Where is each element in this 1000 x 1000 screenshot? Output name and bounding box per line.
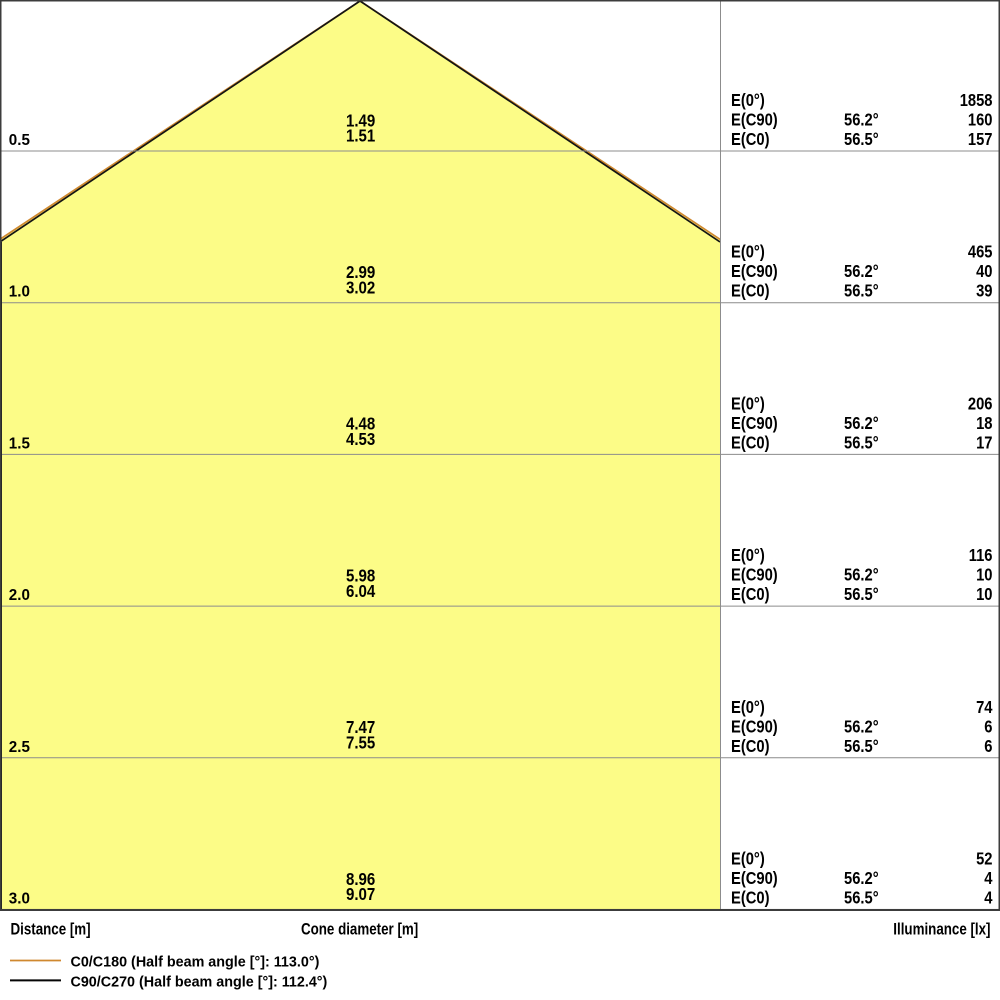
svg-text:9.07: 9.07 bbox=[346, 885, 375, 904]
svg-text:56.5°: 56.5° bbox=[844, 585, 879, 605]
svg-text:56.5°: 56.5° bbox=[844, 888, 879, 908]
svg-text:10: 10 bbox=[976, 585, 992, 605]
svg-text:3.02: 3.02 bbox=[346, 278, 375, 297]
svg-text:56.2°: 56.2° bbox=[844, 565, 879, 585]
svg-text:3.0: 3.0 bbox=[9, 890, 30, 907]
svg-text:E(C90): E(C90) bbox=[731, 565, 778, 585]
svg-text:E(C0): E(C0) bbox=[731, 433, 770, 453]
svg-text:E(C0): E(C0) bbox=[731, 585, 770, 605]
svg-text:Illuminance [lx]: Illuminance [lx] bbox=[893, 921, 990, 938]
svg-text:E(C90): E(C90) bbox=[731, 869, 778, 889]
svg-text:18: 18 bbox=[976, 414, 992, 434]
svg-text:39: 39 bbox=[976, 281, 992, 301]
svg-text:56.5°: 56.5° bbox=[844, 736, 879, 756]
svg-text:1858: 1858 bbox=[960, 91, 993, 111]
svg-text:6: 6 bbox=[984, 736, 992, 756]
svg-text:4: 4 bbox=[984, 888, 993, 908]
svg-text:56.5°: 56.5° bbox=[844, 130, 879, 150]
svg-text:52: 52 bbox=[976, 849, 992, 869]
svg-text:6.04: 6.04 bbox=[346, 582, 375, 601]
svg-text:E(0°): E(0°) bbox=[731, 242, 765, 262]
svg-text:1.5: 1.5 bbox=[9, 435, 30, 452]
svg-text:465: 465 bbox=[968, 242, 993, 262]
svg-text:1.0: 1.0 bbox=[9, 283, 30, 300]
svg-text:56.5°: 56.5° bbox=[844, 281, 879, 301]
svg-text:206: 206 bbox=[968, 394, 993, 414]
svg-text:10: 10 bbox=[976, 565, 992, 585]
svg-text:Distance [m]: Distance [m] bbox=[10, 921, 90, 938]
svg-text:0.5: 0.5 bbox=[9, 132, 30, 149]
svg-text:E(0°): E(0°) bbox=[731, 697, 765, 717]
svg-text:160: 160 bbox=[968, 110, 993, 130]
svg-text:2.5: 2.5 bbox=[9, 738, 30, 755]
svg-text:E(C0): E(C0) bbox=[731, 130, 770, 150]
svg-text:56.5°: 56.5° bbox=[844, 433, 879, 453]
svg-text:56.2°: 56.2° bbox=[844, 262, 879, 282]
svg-text:E(0°): E(0°) bbox=[731, 394, 765, 414]
svg-text:157: 157 bbox=[968, 130, 993, 150]
svg-text:E(C0): E(C0) bbox=[731, 281, 770, 301]
svg-text:E(C90): E(C90) bbox=[731, 110, 778, 130]
svg-text:1.51: 1.51 bbox=[346, 127, 375, 146]
svg-text:C90/C270 (Half beam angle [°]:: C90/C270 (Half beam angle [°]: 112.4°) bbox=[70, 975, 327, 991]
svg-text:E(C0): E(C0) bbox=[731, 888, 770, 908]
svg-text:7.55: 7.55 bbox=[346, 733, 375, 752]
svg-text:56.2°: 56.2° bbox=[844, 717, 879, 737]
svg-text:E(0°): E(0°) bbox=[731, 849, 765, 869]
svg-text:Cone diameter [m]: Cone diameter [m] bbox=[301, 921, 418, 938]
svg-text:E(C90): E(C90) bbox=[731, 414, 778, 434]
svg-text:6: 6 bbox=[984, 717, 992, 737]
svg-text:17: 17 bbox=[976, 433, 992, 453]
svg-text:56.2°: 56.2° bbox=[844, 414, 879, 434]
svg-text:E(C0): E(C0) bbox=[731, 736, 770, 756]
svg-text:74: 74 bbox=[976, 697, 993, 717]
svg-text:E(0°): E(0°) bbox=[731, 546, 765, 566]
svg-text:56.2°: 56.2° bbox=[844, 869, 879, 889]
svg-text:E(0°): E(0°) bbox=[731, 91, 765, 111]
svg-text:4: 4 bbox=[984, 869, 993, 889]
svg-text:56.2°: 56.2° bbox=[844, 110, 879, 130]
svg-text:2.0: 2.0 bbox=[9, 587, 30, 604]
svg-text:40: 40 bbox=[976, 262, 992, 282]
svg-text:C0/C180 (Half beam angle [°]:: C0/C180 (Half beam angle [°]: 113.0°) bbox=[70, 954, 319, 970]
svg-text:E(C90): E(C90) bbox=[731, 717, 778, 737]
svg-text:116: 116 bbox=[969, 546, 993, 566]
svg-text:E(C90): E(C90) bbox=[731, 262, 778, 282]
svg-text:4.53: 4.53 bbox=[346, 430, 375, 449]
